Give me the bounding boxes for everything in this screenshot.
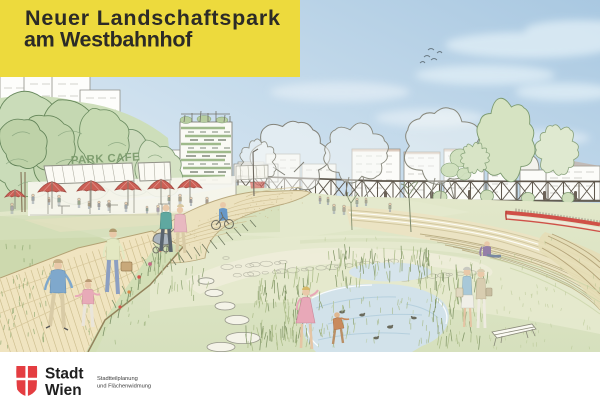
svg-text:am Westbahnhof: am Westbahnhof bbox=[24, 28, 193, 52]
svg-text:Neuer Landschaftspark: Neuer Landschaftspark bbox=[25, 6, 281, 30]
svg-text:und Flächenwidmung: und Flächenwidmung bbox=[97, 384, 151, 390]
svg-text:Stadt: Stadt bbox=[45, 366, 83, 383]
svg-text:Wien: Wien bbox=[45, 382, 82, 399]
svg-text:Stadtteilplanung: Stadtteilplanung bbox=[97, 376, 138, 382]
